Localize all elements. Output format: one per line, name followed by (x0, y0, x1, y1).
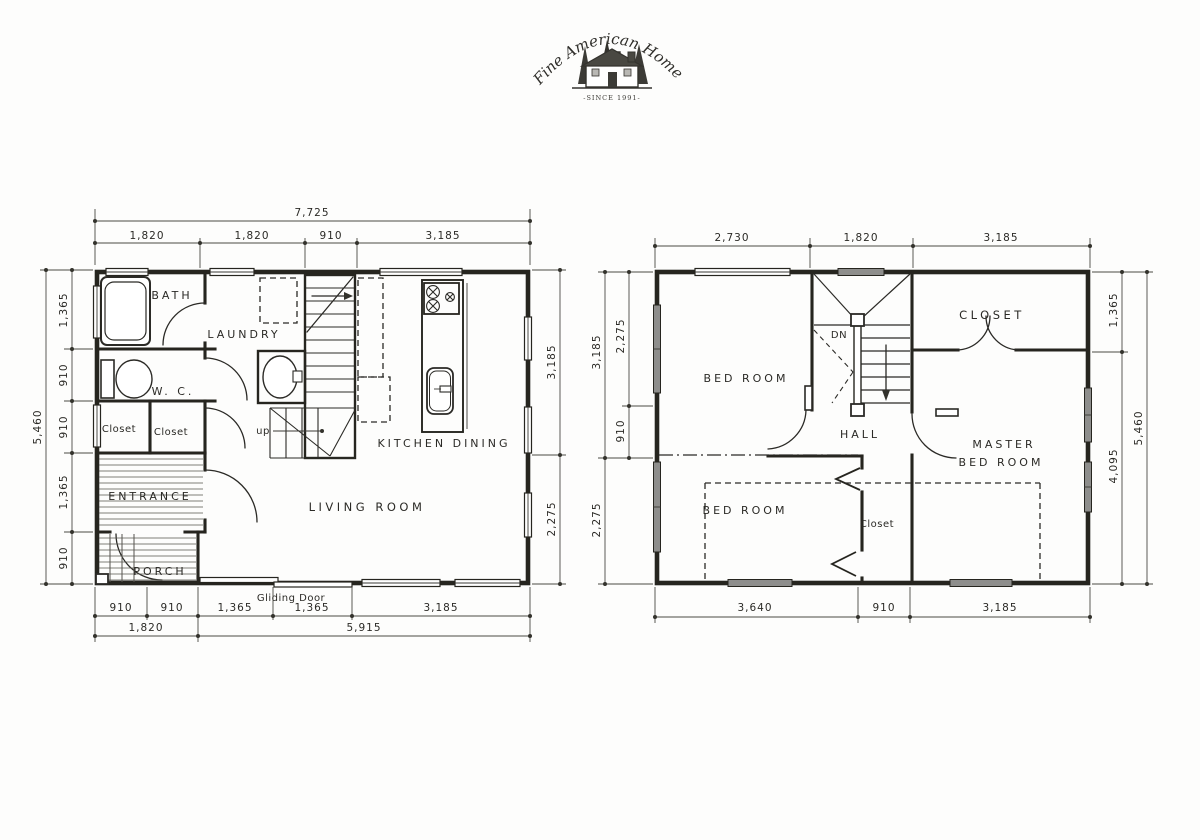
dim-sf-top-1: 1,820 (843, 232, 878, 244)
room-label-bath: BATH (151, 289, 192, 302)
dim-ff-bottom-3: 1,365 (294, 602, 329, 614)
room-label-hall: HALL (840, 428, 880, 441)
sf-reference-lines (659, 455, 1040, 581)
kitchen-counter-icon (422, 280, 467, 432)
dim-ff-bottom-total-1: 5,915 (346, 622, 381, 634)
dim-sf-left-outer-0: 3,185 (591, 334, 603, 369)
room-label-bedroom-top: BED ROOM (704, 372, 789, 385)
dim-ff-left-total: 5,460 (32, 409, 44, 444)
dim-sf-right-total: 5,460 (1133, 410, 1145, 445)
sink-icon (427, 368, 453, 414)
dim-sf-bottom-1: 910 (872, 602, 895, 614)
first-floor-plan: up (32, 207, 566, 642)
dim-sf-left-outer-1: 2,275 (591, 502, 603, 537)
floor-plan-sheet: Fine American Homes -SINCE 1991- (0, 0, 1200, 840)
room-label-living: LIVING ROOM (309, 500, 426, 514)
second-floor-plan: DN (591, 232, 1153, 623)
room-label-closet-b: Closet (154, 427, 188, 438)
sf-stair-label: DN (831, 330, 847, 341)
sf-stairs-down-icon (814, 274, 910, 416)
room-label-master-2: BED ROOM (959, 456, 1044, 469)
dim-ff-right-1: 2,275 (546, 501, 558, 536)
bifold-door-icons (832, 468, 860, 576)
dim-ff-left-0: 1,365 (58, 292, 70, 327)
dim-ff-top-1: 1,820 (234, 230, 269, 242)
company-logo: Fine American Homes -SINCE 1991- (0, 0, 687, 102)
dim-ff-left-3: 1,365 (58, 474, 70, 509)
bathtub-icon (101, 277, 150, 345)
room-label-wc: W. C. (152, 385, 195, 398)
dim-sf-bottom-2: 3,185 (982, 602, 1017, 614)
stove-burners-icon (427, 286, 455, 313)
ff-stair-label: up (256, 426, 270, 437)
room-label-porch: PORCH (133, 565, 186, 578)
basin-icon (263, 356, 302, 398)
dim-ff-top-3: 3,185 (425, 230, 460, 242)
dim-sf-top-0: 2,730 (714, 232, 749, 244)
gliding-door-icon (200, 578, 352, 588)
dim-ff-left-2: 910 (58, 415, 70, 438)
floor-plan-drawing: Fine American Homes -SINCE 1991- (0, 0, 1200, 840)
dim-sf-right-inner-1: 4,095 (1108, 448, 1120, 483)
dim-ff-top-total: 7,725 (294, 207, 329, 219)
dim-sf-bottom-0: 3,640 (737, 602, 772, 614)
dim-ff-bottom-2: 1,365 (217, 602, 252, 614)
dim-sf-left-inner-1: 910 (615, 419, 627, 442)
dim-ff-bottom-0: 910 (109, 602, 132, 614)
room-label-bedroom-bottom: BED ROOM (703, 504, 788, 517)
dim-ff-top-0: 1,820 (129, 230, 164, 242)
dim-ff-right-0: 3,185 (546, 344, 558, 379)
dim-ff-bottom-total-0: 1,820 (128, 622, 163, 634)
dim-sf-right-inner-0: 1,365 (1108, 292, 1120, 327)
ff-dashed-casework (358, 278, 390, 422)
dim-ff-bottom-4: 3,185 (423, 602, 458, 614)
room-label-closet-top: CLOSET (959, 308, 1025, 322)
dim-sf-left-inner-0: 2,275 (615, 318, 627, 353)
room-label-kitchen-dining: KITCHEN DINING (377, 437, 510, 450)
dim-ff-bottom-1: 910 (160, 602, 183, 614)
porch-post-icon (96, 574, 108, 584)
dim-ff-top-2: 910 (319, 230, 342, 242)
room-label-closet-bottom: Closet (860, 519, 894, 530)
room-label-closet-a: Closet (102, 424, 136, 435)
room-label-laundry: LAUNDRY (207, 328, 280, 341)
dim-sf-top-2: 3,185 (983, 232, 1018, 244)
room-label-entrance: ENTRANCE (108, 490, 191, 503)
toilet-icon (101, 360, 152, 398)
room-label-master-1: MASTER (972, 438, 1035, 451)
dim-ff-left-4: 910 (58, 546, 70, 569)
logo-since-text: -SINCE 1991- (583, 94, 640, 102)
washer-icon (260, 278, 297, 323)
dim-ff-left-1: 910 (58, 363, 70, 386)
